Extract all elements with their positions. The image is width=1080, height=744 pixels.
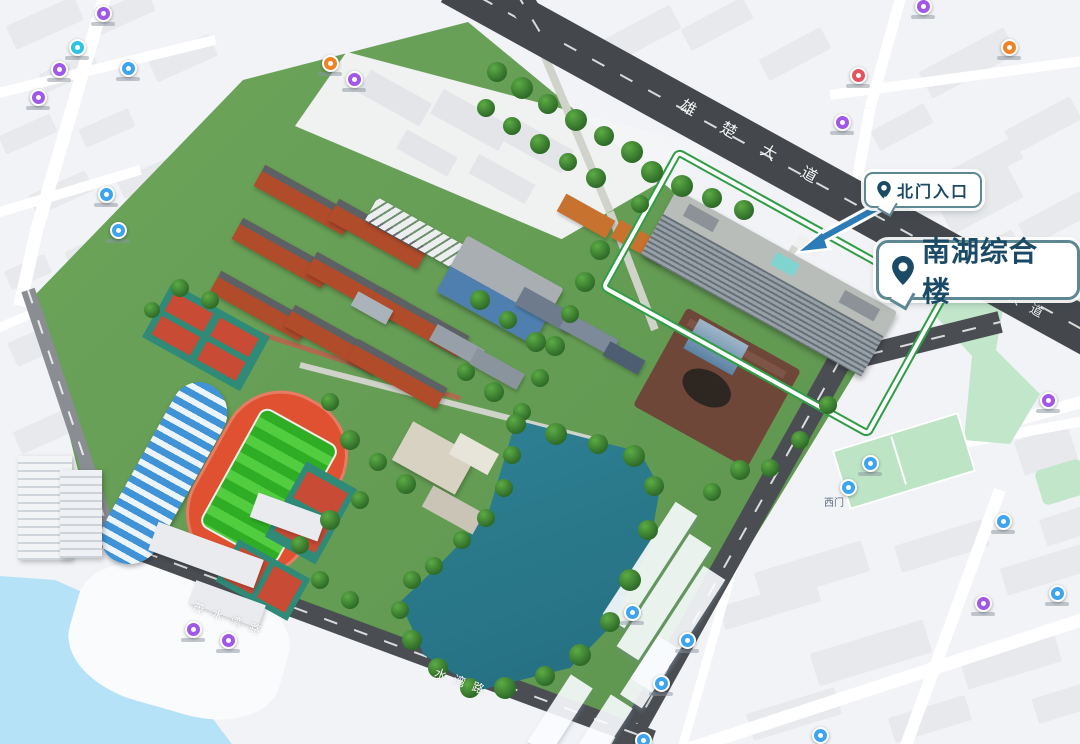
poi-marker[interactable] <box>995 513 1012 530</box>
poi-dot-icon <box>57 67 62 72</box>
poi-marker[interactable] <box>51 61 68 78</box>
tree <box>341 591 359 609</box>
poi-marker[interactable] <box>120 60 137 77</box>
tree <box>391 601 409 619</box>
tree <box>761 459 779 477</box>
poi-label-smudge <box>911 15 935 19</box>
map-building <box>1000 544 1080 595</box>
tree <box>538 94 558 114</box>
poi-label-smudge <box>65 56 89 60</box>
poi-marker[interactable] <box>98 186 115 203</box>
poi-label-smudge <box>1036 409 1060 413</box>
north-gate-label: 北门入口 <box>897 178 969 202</box>
poi-dot-icon <box>226 638 231 643</box>
poi-marker[interactable] <box>30 89 47 106</box>
poi-label-smudge <box>106 239 130 243</box>
tree <box>351 491 369 509</box>
tree <box>600 612 620 632</box>
poi-marker[interactable] <box>1001 39 1018 56</box>
poi-label-west-gate: 西门 <box>824 494 844 509</box>
poi-marker[interactable] <box>812 727 829 744</box>
tree <box>171 279 189 297</box>
main-building-label: 南湖综合楼 <box>922 230 1064 310</box>
poi-marker[interactable] <box>185 621 202 638</box>
tree <box>702 188 722 208</box>
poi-marker[interactable] <box>322 55 339 72</box>
tree <box>311 571 329 589</box>
poi-label-smudge <box>94 203 118 207</box>
tree <box>503 446 521 464</box>
tree <box>590 240 610 260</box>
map-building <box>78 108 135 148</box>
tree <box>621 141 643 163</box>
tree <box>511 77 533 99</box>
poi-dot-icon <box>116 228 121 233</box>
tree <box>791 431 809 449</box>
north-gate-callout[interactable]: 北门入口 <box>864 172 982 208</box>
tree <box>526 332 546 352</box>
street <box>688 609 1080 744</box>
poi-marker[interactable] <box>346 71 363 88</box>
tree <box>495 479 513 497</box>
map-building <box>680 0 753 51</box>
poi-dot-icon <box>981 601 986 606</box>
tree <box>484 382 504 402</box>
tree <box>403 571 421 589</box>
map-pin-icon <box>892 256 914 285</box>
poi-dot-icon <box>191 627 196 632</box>
poi-dot-icon <box>75 45 80 50</box>
poi-marker[interactable] <box>915 0 932 15</box>
poi-label-smudge <box>997 56 1021 60</box>
poi-dot-icon <box>685 638 690 643</box>
tree <box>545 423 567 445</box>
highrise-dorm <box>60 470 102 558</box>
tree <box>470 290 490 310</box>
tree <box>402 630 422 650</box>
tree <box>575 272 595 292</box>
poi-label-smudge <box>116 77 140 81</box>
poi-dot-icon <box>630 610 635 615</box>
poi-label-smudge <box>971 612 995 616</box>
tree <box>530 134 550 154</box>
tree <box>644 476 664 496</box>
poi-dot-icon <box>101 11 106 16</box>
poi-label-smudge <box>47 78 71 82</box>
poi-marker[interactable] <box>834 114 851 131</box>
poi-marker[interactable] <box>679 632 696 649</box>
poi-marker[interactable] <box>220 632 237 649</box>
poi-marker[interactable] <box>69 39 86 56</box>
tree <box>457 363 475 381</box>
tree <box>535 666 555 686</box>
poi-dot-icon <box>856 73 861 78</box>
tree <box>671 175 693 197</box>
street <box>865 0 908 109</box>
poi-marker[interactable] <box>653 675 670 692</box>
tree <box>586 168 606 188</box>
poi-marker[interactable] <box>110 222 127 239</box>
tree <box>703 483 721 501</box>
tree <box>320 510 340 530</box>
poi-label-smudge <box>675 649 699 653</box>
tree <box>396 474 416 494</box>
tree <box>569 644 591 666</box>
tree <box>453 531 471 549</box>
poi-label-smudge <box>1045 602 1069 606</box>
poi-marker[interactable] <box>850 67 867 84</box>
poi-marker[interactable] <box>862 455 879 472</box>
poi-label-smudge <box>649 692 673 696</box>
poi-label-smudge <box>91 22 115 26</box>
map-building <box>1039 505 1080 546</box>
poi-marker[interactable] <box>635 732 652 744</box>
poi-dot-icon <box>1046 398 1051 403</box>
tree <box>565 109 587 131</box>
tree <box>494 677 516 699</box>
poi-dot-icon <box>328 61 333 66</box>
map-building <box>888 695 972 743</box>
poi-dot-icon <box>352 77 357 82</box>
tree <box>545 336 565 356</box>
tree <box>487 62 507 82</box>
poi-label-smudge <box>620 621 644 625</box>
tree <box>425 557 443 575</box>
poi-marker[interactable] <box>624 604 641 621</box>
map-building <box>758 27 831 81</box>
tree <box>588 434 608 454</box>
tree <box>561 305 579 323</box>
poi-dot-icon <box>104 192 109 197</box>
poi-label-smudge <box>26 106 50 110</box>
tree <box>819 396 837 414</box>
map-building <box>870 103 933 151</box>
tree <box>369 453 387 471</box>
poi-dot-icon <box>840 120 845 125</box>
poi-marker[interactable] <box>1049 585 1066 602</box>
poi-label-smudge <box>991 530 1015 534</box>
map-building <box>0 113 58 154</box>
poi-dot-icon <box>921 4 926 9</box>
tree <box>734 200 754 220</box>
main-building-callout[interactable]: 南湖综合楼 <box>876 240 1080 300</box>
poi-dot-icon <box>1001 519 1006 524</box>
map-canvas[interactable]: 雄楚大道 大道 茂水湾路 水湾路 西门 北门入口 南湖综合楼 <box>0 0 1080 744</box>
tree <box>531 369 549 387</box>
poi-dot-icon <box>846 485 851 490</box>
tree <box>641 161 663 183</box>
tree <box>503 117 521 135</box>
sports-field-flat-part <box>890 436 907 484</box>
tree <box>477 509 495 527</box>
tree <box>477 99 495 117</box>
poi-dot-icon <box>36 95 41 100</box>
tree <box>144 302 160 318</box>
tree <box>506 414 526 434</box>
poi-dot-icon <box>659 681 664 686</box>
tree <box>291 536 309 554</box>
poi-label-smudge <box>846 84 870 88</box>
poi-label-smudge <box>342 88 366 92</box>
poi-dot-icon <box>126 66 131 71</box>
poi-label-smudge <box>858 472 882 476</box>
poi-label-smudge <box>216 649 240 653</box>
tree <box>638 520 658 540</box>
poi-dot-icon <box>1055 591 1060 596</box>
poi-dot-icon <box>818 733 823 738</box>
tree <box>730 460 750 480</box>
tree <box>201 291 219 309</box>
poi-marker[interactable] <box>95 5 112 22</box>
tree <box>340 430 360 450</box>
tree <box>619 569 641 591</box>
poi-label-smudge <box>830 131 854 135</box>
tree <box>559 153 577 171</box>
poi-label-smudge <box>181 638 205 642</box>
tree <box>321 393 339 411</box>
map-building <box>919 27 1018 99</box>
poi-dot-icon <box>868 461 873 466</box>
poi-marker[interactable] <box>975 595 992 612</box>
tree <box>631 195 649 213</box>
tree <box>594 126 614 146</box>
map-building <box>1031 682 1080 724</box>
poi-marker[interactable] <box>1040 392 1057 409</box>
poi-dot-icon <box>641 738 646 743</box>
poi-dot-icon <box>1007 45 1012 50</box>
tree <box>623 445 645 467</box>
tree <box>499 311 517 329</box>
poi-label-smudge <box>318 72 342 76</box>
